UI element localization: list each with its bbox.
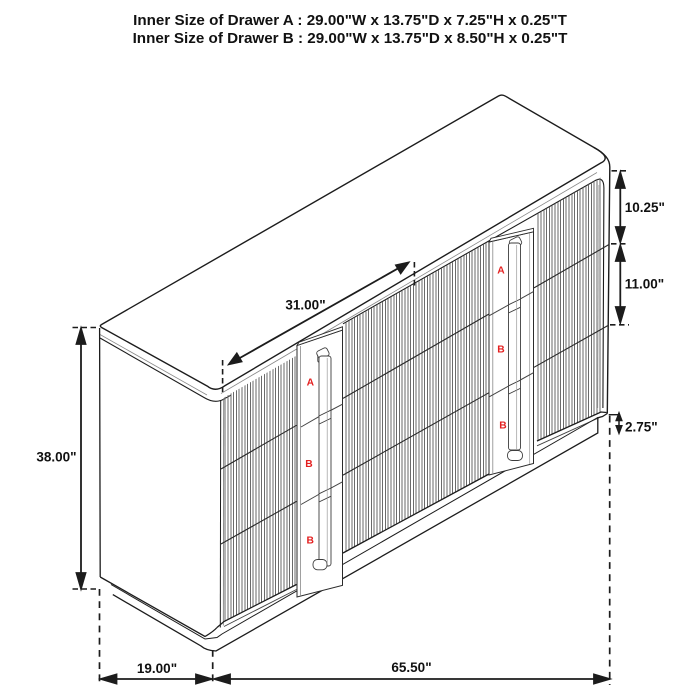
svg-text:A: A [307,377,315,388]
svg-text:65.50": 65.50" [391,660,431,675]
svg-text:Inner Size of Drawer B : 29.00: Inner Size of Drawer B : 29.00"W x 13.75… [133,30,569,47]
svg-text:2.75": 2.75" [625,420,658,435]
svg-text:B: B [305,459,312,470]
svg-text:B: B [499,421,506,432]
svg-text:19.00": 19.00" [137,661,177,676]
svg-text:38.00": 38.00" [36,450,76,465]
svg-text:Inner Size of Drawer A : 29.00: Inner Size of Drawer A : 29.00"W x 13.75… [133,12,567,29]
svg-text:10.25": 10.25" [625,200,665,215]
svg-text:B: B [497,345,504,356]
svg-text:A: A [497,266,505,277]
svg-text:B: B [306,536,313,547]
svg-text:31.00": 31.00" [285,298,325,313]
svg-text:11.00": 11.00" [625,277,664,292]
